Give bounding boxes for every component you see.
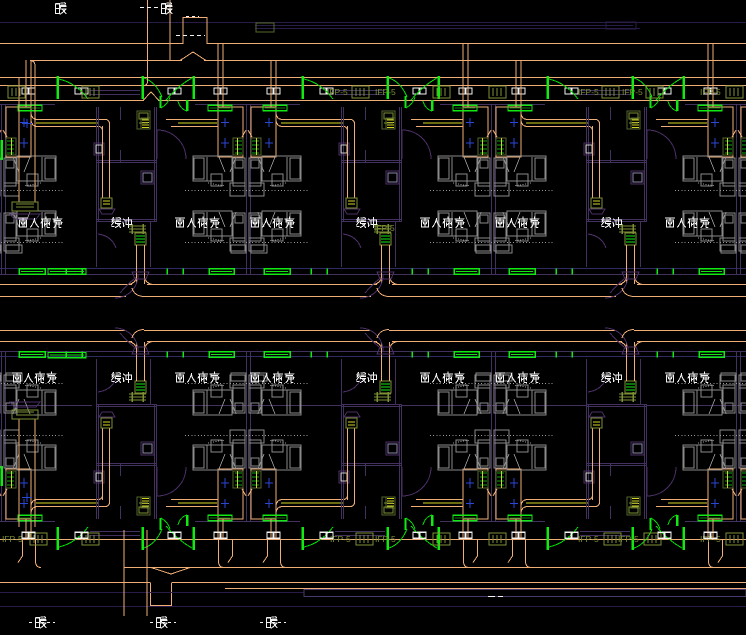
svg-text:IFP-5: IFP-5	[700, 87, 721, 97]
svg-text:IFP-5: IFP-5	[327, 87, 348, 97]
svg-text:IFP-5: IFP-5	[622, 87, 643, 97]
svg-text:IFP-5: IFP-5	[618, 534, 639, 544]
svg-text:IFP-5: IFP-5	[2, 534, 23, 544]
svg-text:IFP-5: IFP-5	[375, 534, 396, 544]
svg-text:IFP-5: IFP-5	[375, 87, 396, 97]
svg-text:IFP-5: IFP-5	[374, 223, 395, 233]
svg-text:IFP-5: IFP-5	[578, 534, 599, 544]
svg-text:IFP-5: IFP-5	[578, 87, 599, 97]
